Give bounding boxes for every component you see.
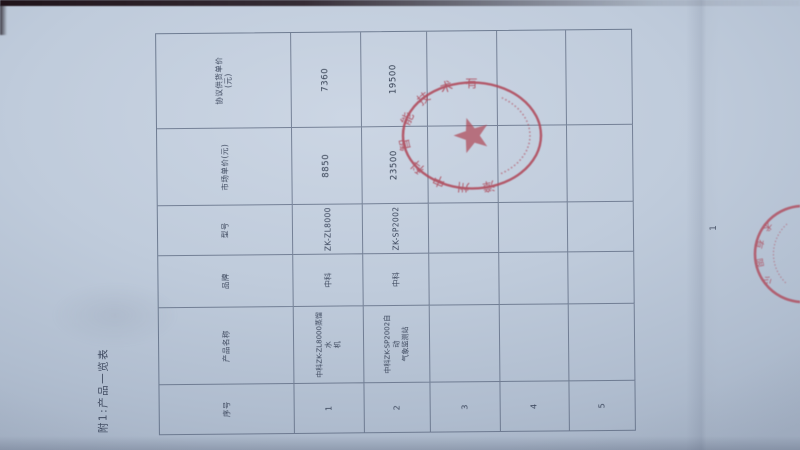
table-cell: 7360: [291, 32, 362, 128]
cell-text: 市场单价(元): [220, 143, 229, 190]
table-cell: [429, 253, 499, 306]
table-cell: [568, 252, 634, 305]
cell-text: ZK-SP2002: [391, 206, 400, 250]
cell-text: 产品名称: [221, 330, 230, 362]
header-cell: 品牌: [158, 255, 293, 308]
cell-text: ZK-ZL8000: [323, 207, 332, 251]
photo-background: 附1:产品一览表 协议供货单价 (元)736019500市场单价(元)88502…: [0, 0, 800, 450]
header-cell: 产品名称: [159, 307, 295, 385]
table-cell: ZK-SP2002: [363, 204, 429, 255]
table-cell: 中科ZK-ZL8000蒸馏水 机: [294, 306, 365, 384]
table-cell: 8850: [292, 127, 363, 205]
edge-seal-code-marks: [773, 224, 787, 284]
table-cell: 19500: [361, 32, 428, 128]
table-cell: 4: [500, 381, 569, 432]
table-cell: ZK-ZL8000: [293, 204, 363, 255]
table-cell: [498, 125, 568, 203]
cell-text: 4: [530, 404, 540, 409]
edge-seal-ring: [755, 206, 800, 302]
cell-text: 中科ZK-SP2002自动 气象监测站: [383, 311, 410, 376]
table-cell: [566, 30, 633, 126]
table-cell: 中科ZK-SP2002自动 气象监测站: [364, 306, 431, 384]
header-cell: 序号: [159, 384, 294, 435]
attachment-caption: 附1:产品一览表: [96, 336, 111, 446]
cell-text: 序号: [222, 401, 231, 417]
cell-text: 品牌: [221, 273, 230, 289]
header-cell: 协议供货单价 (元): [156, 33, 292, 129]
header-cell: 市场单价(元): [157, 128, 293, 206]
table-cell: [569, 304, 636, 382]
header-cell: 型号: [158, 205, 293, 256]
table-cell: [500, 304, 570, 382]
product-table: 协议供货单价 (元)736019500市场单价(元)885023500型号ZK-…: [155, 29, 636, 436]
cell-text: 8850: [322, 154, 332, 178]
edge-seal-textpath: 术有限公司: [740, 202, 775, 289]
table-cell: 3: [430, 382, 500, 433]
table-cell: [430, 305, 501, 383]
table-cell: 中科: [363, 254, 429, 307]
table-cell: [567, 125, 634, 203]
table-cell: [499, 202, 568, 253]
cell-text: 中科: [323, 273, 332, 288]
table-cell: 23500: [362, 127, 429, 205]
cell-text: 3: [460, 404, 470, 409]
cell-text: 1: [324, 406, 334, 411]
table-cell: [429, 203, 499, 254]
table-cell: [427, 31, 498, 127]
cell-text: 19500: [389, 64, 399, 94]
table-cell: [497, 30, 567, 126]
cell-text: 5: [597, 403, 607, 408]
cell-text: 型号: [220, 222, 229, 238]
table-cell: [428, 126, 499, 204]
cell-text: 中科ZK-ZL8000蒸馏水 机: [315, 310, 342, 379]
table-cell: [568, 202, 634, 253]
edge-seal-partial: 术有限公司: [740, 202, 800, 312]
cell-text: 7360: [321, 68, 331, 92]
cell-text: 协议供货单价 (元): [214, 57, 232, 105]
table-cell: 1: [294, 383, 364, 434]
table-cell: [499, 252, 568, 305]
cell-text: 2: [392, 405, 402, 410]
cell-text: 23500: [390, 150, 400, 180]
page-number: 1: [709, 218, 723, 238]
table-cell: 中科: [293, 254, 363, 307]
table-cell: 2: [364, 383, 430, 434]
cell-text: 中科: [391, 272, 400, 287]
paper-sheet: 附1:产品一览表 协议供货单价 (元)736019500市场单价(元)88502…: [0, 0, 800, 450]
edge-seal-text: 术有限公司: [740, 202, 775, 289]
table-cell: 5: [569, 381, 635, 432]
